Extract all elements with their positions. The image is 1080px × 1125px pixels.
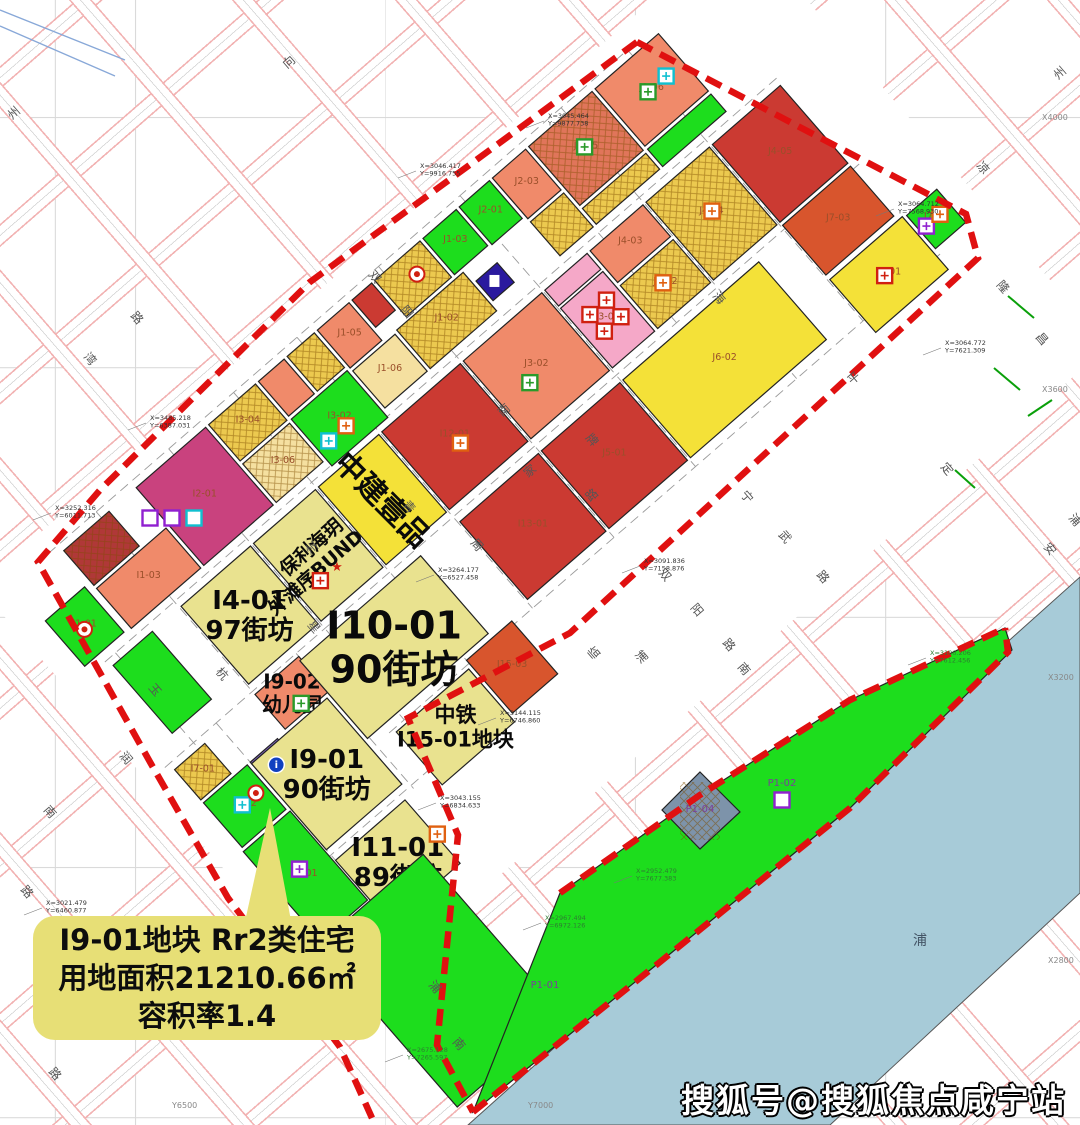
coordinate-note: X=3046.417Y=9916.755	[419, 162, 461, 178]
coordinate-note: X=3064.772Y=7621.309	[944, 339, 986, 355]
note-leader	[385, 1055, 403, 1062]
road-name: 凉	[974, 158, 993, 177]
map-icon-g	[641, 84, 656, 99]
coordinate-note: X=3064.712Y=7568.930	[897, 200, 939, 216]
axis-label: X3600	[1042, 385, 1068, 394]
coordinate-note: X=2952.479Y=7677.383	[635, 867, 677, 883]
coordinate-note: X=3106.206Y=7612.456	[929, 649, 971, 665]
map-icon-I: i	[268, 757, 284, 773]
map-icon-p	[165, 511, 180, 526]
parcel-id-label: J3-02	[523, 358, 548, 369]
parcel-label-I10-01: I10-0190街坊	[326, 604, 462, 692]
coordinate-note: X=3021.479Y=6460.877	[45, 899, 87, 915]
svg-text:i: i	[275, 760, 278, 771]
parcel-info-callout: I9-01地块 Rr2类住宅 用地面积21210.66㎡ 容积率1.4	[33, 916, 381, 1040]
road-name: 州	[1051, 64, 1069, 82]
strip-label-P1-02: P1-02	[768, 778, 797, 789]
coordinate-note: X=2675.128Y=7265.597	[406, 1046, 448, 1062]
axis-label: Y6500	[171, 1101, 197, 1110]
map-icon-c	[321, 433, 336, 448]
svg-text:★: ★	[331, 560, 343, 575]
map-icon-o	[430, 827, 445, 842]
green-line	[955, 470, 975, 488]
road-name: 安	[1041, 539, 1060, 558]
river-name: 浦	[913, 933, 927, 949]
callout-line-3: 容积率1.4	[138, 997, 276, 1035]
axis-label: X3200	[1048, 673, 1074, 682]
coordinate-note: X=3264.177Y=6527.458	[437, 566, 479, 582]
note-leader	[398, 171, 416, 178]
map-icon-R	[409, 267, 424, 282]
zoning-map-stage: I1-03I1-01I2-01I3-04I3-06I3-02J1-05J1-06…	[0, 0, 1080, 1125]
parcel-id-label: I3-06	[271, 455, 295, 466]
note-leader	[24, 908, 42, 915]
map-icon-p	[292, 862, 307, 877]
parcel-id-label: J1-06	[377, 363, 402, 374]
map-icon-c	[659, 69, 674, 84]
axis-label: Y7000	[527, 1101, 553, 1110]
road-name: 南	[41, 802, 60, 821]
note-leader	[128, 423, 146, 430]
map-icon-o	[704, 204, 719, 219]
parcel-id-label: J6-02	[711, 352, 736, 363]
coordinate-note: X=2967.494Y=6972.126	[544, 914, 586, 930]
callout-line-2: 用地面积21210.66㎡	[58, 959, 355, 997]
axis-label: X4000	[1042, 113, 1068, 122]
parcel-id-label: J7-03	[825, 213, 850, 224]
coordinate-note: X=3252.316Y=6011.713	[54, 504, 96, 520]
map-icon-p	[775, 793, 790, 808]
parcel-id-label: J4-03	[617, 236, 642, 247]
map-icon-c	[235, 797, 250, 812]
parcel-id-label: J1-05	[336, 327, 361, 338]
map-icon-g	[294, 696, 309, 711]
parcel-id-label: J1-02	[433, 312, 458, 323]
road-name: 向	[279, 52, 298, 71]
parcel-id-label: I3-04	[236, 414, 260, 425]
road-name: 湾	[81, 349, 100, 368]
coordinate-note: X=3043.155Y=6834.633	[439, 794, 481, 810]
parcel-id-label: I13-01	[518, 518, 548, 529]
parcel-id-label: I2-01	[193, 488, 217, 499]
coordinate-note: X=3485.218Y=6387.031	[149, 414, 191, 430]
map-icon-r	[313, 573, 328, 588]
road-name: 州	[5, 104, 23, 122]
map-icon-R	[77, 622, 92, 637]
road-name: 浦	[1066, 511, 1080, 529]
parcel-id-label: J4-05	[767, 146, 792, 157]
note-leader	[523, 923, 541, 930]
map-icon-c	[187, 511, 202, 526]
map-icon-w	[489, 275, 499, 287]
road-name: 路	[46, 1064, 65, 1083]
parcel-id-label: J1-03	[442, 234, 467, 245]
map-icon-r	[582, 307, 597, 322]
axis-label: X2800	[1048, 956, 1074, 965]
road-name: 路	[128, 308, 147, 327]
callout-line-1: I9-01地块 Rr2类住宅	[59, 921, 354, 959]
road-name: 路	[18, 882, 37, 901]
strip-label-P1-01: P1-01	[531, 980, 560, 991]
map-icon-g	[522, 375, 537, 390]
parcel-id-label: I7-01	[191, 764, 215, 775]
coordinate-note: X=3045.464Y=9877.738	[547, 112, 589, 128]
map-icon-r	[597, 324, 612, 339]
map-icon-r	[613, 309, 628, 324]
parcel-id-label: J5-01	[601, 448, 626, 459]
map-icon-r	[877, 268, 892, 283]
map-icon-s: ★	[331, 560, 343, 575]
watermark: 搜狐号@搜狐焦点咸宁站	[681, 1074, 1066, 1122]
coordinate-note: X=3091.836Y=7158.876	[643, 557, 685, 573]
map-icon-o	[339, 418, 354, 433]
parcel-id-label: J2-03	[514, 176, 539, 187]
map-icon-R	[248, 786, 263, 801]
map-icon-r	[599, 293, 614, 308]
map-icon-o	[656, 275, 671, 290]
parcel-label-I9-01: I9-0190街坊	[283, 745, 371, 805]
parcel-id-label: J2-01	[478, 205, 503, 216]
map-icon-p	[143, 511, 158, 526]
map-icon-o	[453, 436, 468, 451]
note-leader	[33, 513, 51, 520]
parcel-id-label: I1-03	[136, 570, 160, 581]
coordinate-note: X=3144.115Y=6746.860	[499, 709, 541, 725]
map-icon-g	[577, 139, 592, 154]
